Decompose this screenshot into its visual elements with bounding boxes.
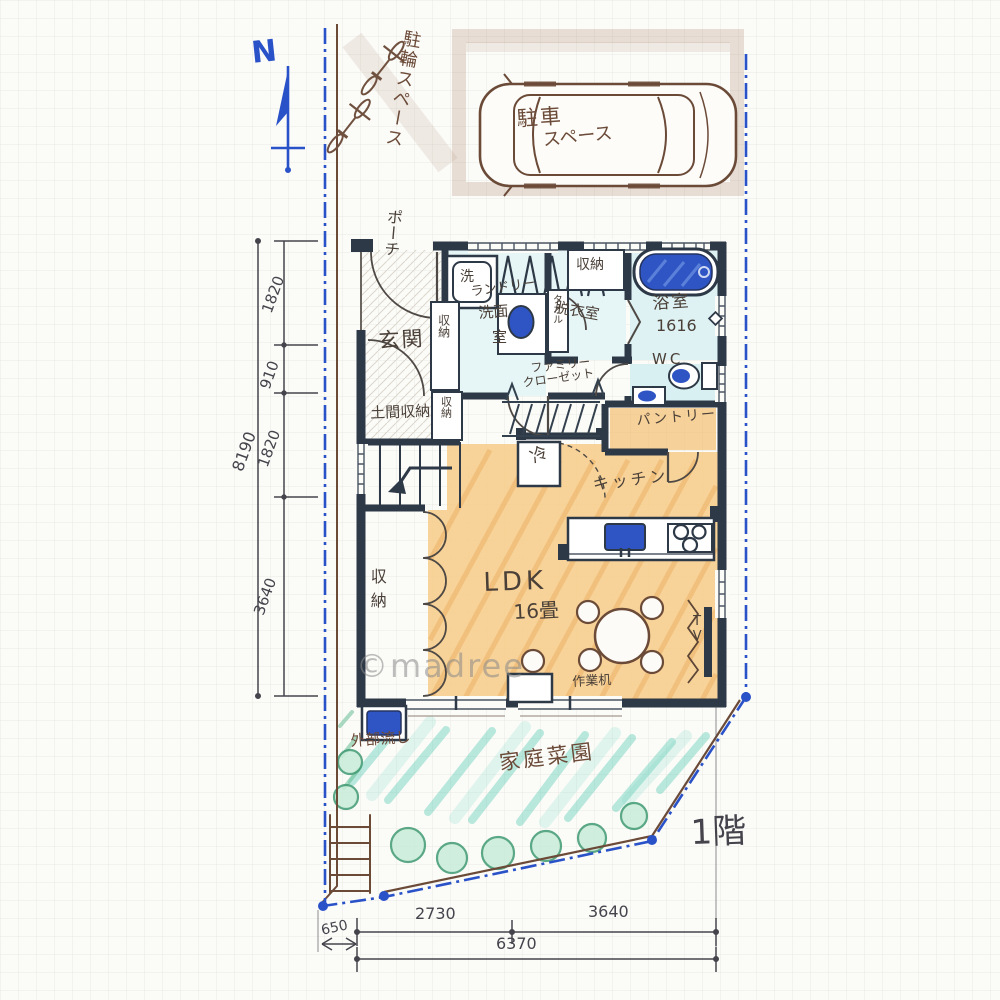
laundry-label-3: 室 (492, 330, 507, 346)
dressing-storage-label: 収納 (576, 258, 604, 273)
storage-b-label: 収納 (440, 396, 452, 418)
storage-a-label: 収納 (437, 314, 450, 338)
tv-label: TV (690, 614, 704, 644)
north-label: N (250, 35, 278, 69)
floor-label: 1階 (690, 814, 747, 852)
kitchen-counter (568, 518, 714, 560)
kitchen-sink (605, 524, 645, 550)
floorplan-page: N 駐輪スペース 駐車 スペース ポーチ 玄関 収納 洗 ランドリー 洗面 室 … (0, 0, 1000, 1000)
wc-label: WC (652, 352, 683, 368)
porch-label: ポーチ (381, 208, 402, 257)
dim-bottom-total: 6370 (496, 936, 537, 953)
washer-label: 洗 (460, 270, 474, 285)
watermark: ©madree (356, 650, 525, 684)
entrance-label: 玄関 (378, 328, 425, 352)
bath-label-2: 1616 (656, 318, 697, 335)
ldk-label-1: LDK (483, 568, 547, 597)
desk-label: 作業机 (572, 674, 612, 690)
car-parking-label-line1: 駐車 (516, 105, 563, 130)
ldk-storage-label: 収納 (368, 568, 385, 616)
dim-bottom-seg-1: 2730 (415, 906, 456, 923)
doma-storage-label: 土間収納 (370, 404, 431, 422)
dim-bottom-seg-2: 3640 (588, 904, 629, 921)
bath-label-1: 浴室 (652, 293, 691, 313)
laundry-label-2: 洗面 (478, 304, 509, 322)
floorplan-drawing (0, 0, 1000, 1000)
ldk-label-2: 16畳 (513, 600, 559, 623)
